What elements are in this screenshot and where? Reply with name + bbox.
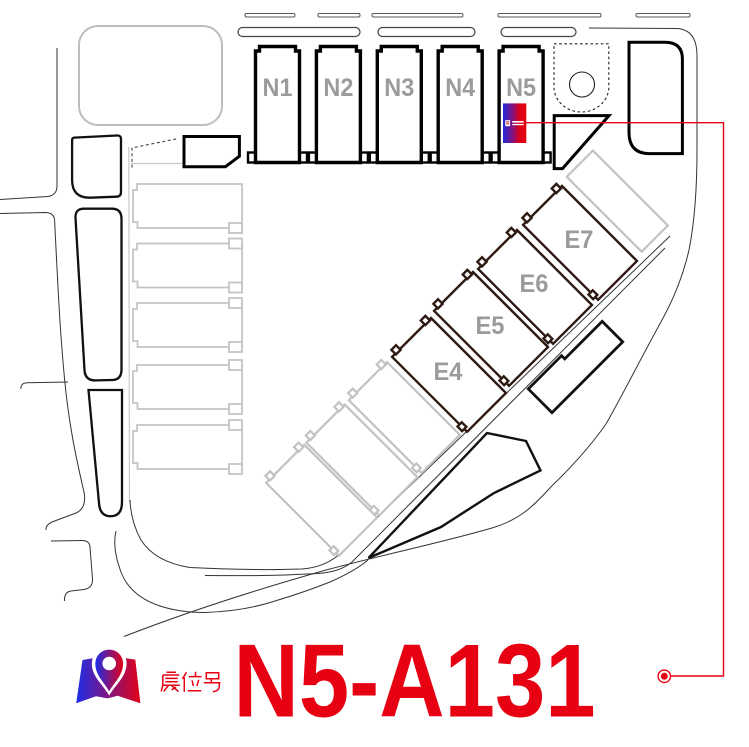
svg-text:N3: N3 (384, 74, 414, 102)
svg-text:N5: N5 (506, 74, 536, 102)
svg-text:E7: E7 (565, 226, 594, 254)
svg-text:N4: N4 (445, 74, 475, 102)
svg-text:N1: N1 (263, 74, 293, 102)
svg-text:E4: E4 (434, 358, 463, 386)
svg-text:N5-A131: N5-A131 (234, 622, 596, 738)
svg-text:E5: E5 (476, 312, 505, 340)
svg-text:N2: N2 (323, 74, 353, 102)
svg-text:E6: E6 (520, 270, 549, 298)
